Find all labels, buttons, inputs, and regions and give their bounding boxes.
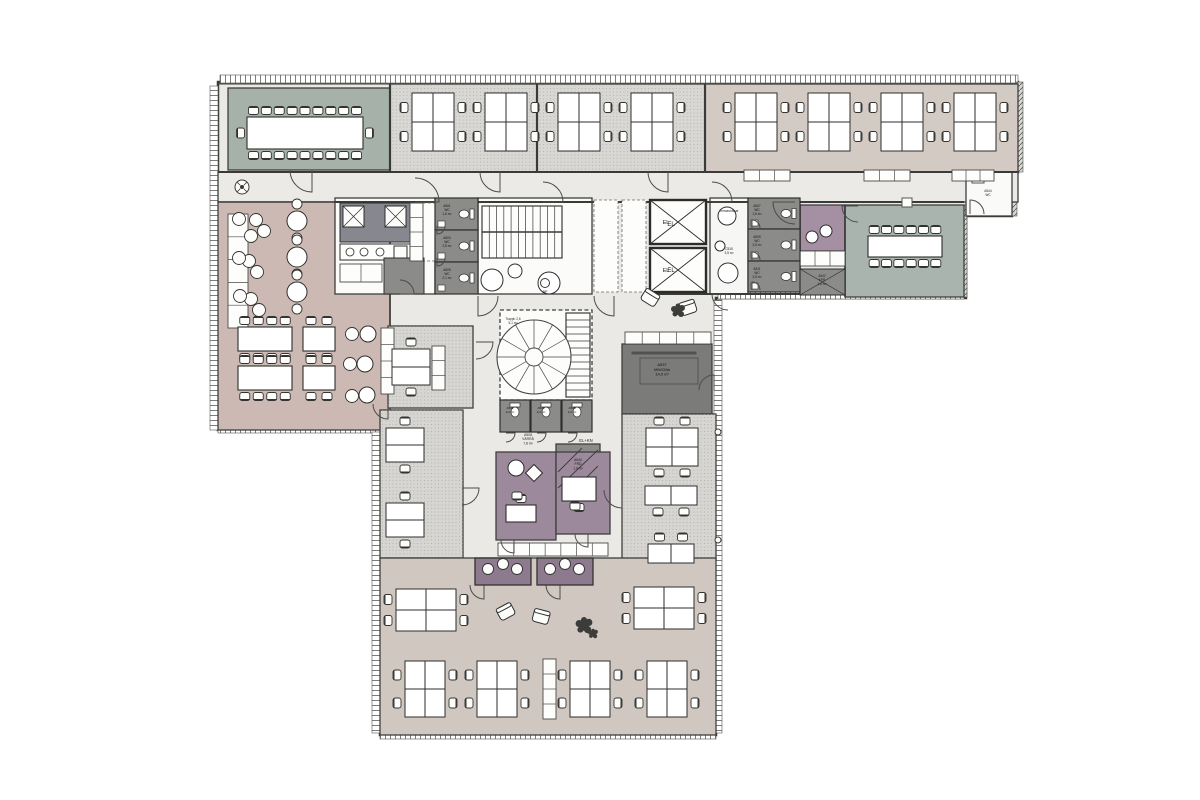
desk: [558, 122, 579, 151]
chair: [680, 417, 690, 425]
chair-round: [253, 304, 266, 317]
chair: [384, 616, 392, 626]
chair: [906, 226, 916, 234]
desk: [881, 122, 902, 151]
room-label: EL: [667, 222, 675, 228]
chair: [622, 593, 630, 603]
toilet-bowl: [781, 210, 791, 218]
room-label: A5252,2 m²: [568, 406, 577, 414]
desk: [808, 122, 829, 151]
chair: [558, 670, 566, 680]
chair-round: [344, 358, 357, 371]
fixture-rect: [902, 198, 912, 207]
sink: [438, 253, 445, 259]
chair: [796, 132, 804, 142]
desk: [829, 93, 850, 122]
chair: [869, 132, 877, 142]
cabinet-row: [340, 264, 382, 282]
desk: [671, 486, 697, 505]
chair: [406, 338, 416, 346]
toilet-tank: [470, 209, 474, 219]
toilet-tank: [470, 241, 474, 251]
sink: [438, 285, 445, 291]
chair: [406, 388, 416, 396]
chair: [352, 152, 362, 160]
desk: [902, 122, 923, 151]
chair: [869, 226, 879, 234]
desk: [954, 122, 975, 151]
toilet-bowl: [781, 273, 791, 281]
chair: [655, 533, 665, 541]
chair: [393, 670, 401, 680]
toilet-bowl: [459, 242, 469, 250]
chair: [622, 614, 630, 624]
chair: [619, 103, 627, 113]
desk: [652, 122, 673, 151]
chair: [322, 317, 332, 325]
chair: [635, 698, 643, 708]
cabinet-row: [864, 170, 910, 181]
chair: [781, 132, 789, 142]
room-label: A542KPR1,6 m²: [817, 274, 826, 286]
desk-cluster-quad: [622, 587, 706, 629]
desk: [506, 93, 527, 122]
floor-plan-svg: ELELELELBPEL+KNA508VÄRRÅ7,8 m²A537MH/CMa…: [0, 0, 1200, 800]
fixture-rect: [343, 206, 364, 227]
desk: [829, 122, 850, 151]
chair: [927, 132, 935, 142]
chair: [449, 698, 457, 708]
stool: [483, 564, 494, 575]
chair: [619, 132, 627, 142]
desk: [756, 93, 777, 122]
chair-round: [346, 328, 359, 341]
toilet-tank: [792, 209, 796, 219]
desk: [570, 661, 590, 689]
room-label: A5232,2 m²: [537, 406, 546, 414]
chair: [400, 417, 410, 425]
desk: [954, 93, 975, 122]
chair: [906, 260, 916, 268]
desk: [756, 122, 777, 151]
spiral-staircase: [497, 320, 571, 394]
desk: [485, 122, 506, 151]
desk: [645, 486, 671, 505]
chair: [654, 469, 664, 477]
chair: [680, 469, 690, 477]
round-table: [481, 269, 503, 291]
chair: [521, 670, 529, 680]
elevator: EL: [650, 200, 706, 244]
chair-round: [245, 230, 258, 243]
table-top: [562, 477, 596, 501]
desk: [646, 447, 672, 466]
desk-cluster-quad: [384, 589, 468, 631]
round-table: [359, 387, 375, 403]
cabinet-row: [800, 251, 845, 266]
desk: [808, 93, 829, 122]
chair: [653, 508, 663, 516]
chair: [267, 356, 277, 364]
chair: [531, 132, 539, 142]
desk: [647, 661, 667, 689]
chair: [400, 132, 408, 142]
desk: [579, 93, 600, 122]
desk: [646, 428, 672, 447]
chair: [781, 103, 789, 113]
toilet-tank: [792, 272, 796, 282]
round-table: [508, 264, 522, 278]
chair: [267, 393, 277, 401]
chair-round: [250, 214, 263, 227]
desk: [497, 661, 517, 689]
chair: [894, 260, 904, 268]
stool: [560, 559, 571, 570]
wall-symbol: [541, 279, 550, 288]
chair-round: [251, 266, 264, 279]
room-label: Terrasshissar: [720, 209, 740, 213]
desk: [648, 544, 671, 563]
chair: [280, 393, 290, 401]
desk: [396, 589, 426, 610]
chair: [1000, 103, 1008, 113]
desk: [671, 544, 694, 563]
chair: [691, 670, 699, 680]
wc-room: [435, 230, 478, 262]
wc-room: [531, 400, 561, 432]
desk: [975, 122, 996, 151]
desk: [647, 689, 667, 717]
desk: [634, 587, 664, 608]
wc-room: [435, 198, 478, 230]
room-label: EL+KN: [579, 438, 592, 443]
table-top: [238, 366, 292, 390]
round-table: [820, 225, 832, 237]
chair: [546, 103, 554, 113]
chair: [352, 107, 362, 115]
table-top: [868, 236, 942, 257]
chair: [384, 595, 392, 605]
wall-symbol: [715, 537, 721, 543]
chair: [237, 128, 245, 138]
storage-dashed: [594, 200, 618, 292]
chair: [339, 152, 349, 160]
chair: [854, 132, 862, 142]
chair: [919, 260, 929, 268]
desk: [477, 689, 497, 717]
chair: [931, 260, 941, 268]
toilet-tank: [470, 273, 474, 283]
table-top: [238, 327, 292, 351]
chair: [604, 103, 612, 113]
desk: [497, 689, 517, 717]
desk: [386, 520, 424, 537]
stool: [498, 559, 509, 570]
desk: [579, 122, 600, 151]
chair: [473, 132, 481, 142]
desk: [506, 122, 527, 151]
desk: [664, 587, 694, 608]
chair-standalone: [570, 502, 580, 510]
chair: [698, 614, 706, 624]
table-top: [247, 117, 363, 149]
cabinet-row: [744, 170, 790, 181]
cabinet-row: [952, 170, 994, 181]
chair: [306, 393, 316, 401]
chair: [240, 317, 250, 325]
chair: [942, 103, 950, 113]
desk: [902, 93, 923, 122]
chair: [882, 260, 892, 268]
desk: [426, 610, 456, 631]
chair-round: [233, 213, 246, 226]
desk: [392, 367, 430, 385]
fixture-rect: [632, 352, 696, 354]
floor-plan-page: ELELELELBPEL+KNA508VÄRRÅ7,8 m²A537MH/CMa…: [0, 0, 1200, 800]
round-table: [715, 241, 725, 251]
fixture-rect: [385, 206, 406, 227]
chair: [635, 670, 643, 680]
chair: [854, 103, 862, 113]
stool: [574, 564, 585, 575]
room-label: BP: [543, 290, 548, 294]
desk: [590, 661, 610, 689]
chair: [339, 107, 349, 115]
desk: [664, 608, 694, 629]
wc-room: [435, 262, 478, 294]
desk: [425, 689, 445, 717]
desk: [386, 428, 424, 445]
chair: [882, 226, 892, 234]
chair: [261, 152, 271, 160]
chair: [465, 698, 473, 708]
chair: [306, 317, 316, 325]
chair: [919, 226, 929, 234]
chair: [614, 670, 622, 680]
chair: [261, 107, 271, 115]
chair: [570, 502, 580, 510]
chair-round: [234, 290, 247, 303]
chair: [313, 152, 323, 160]
phone-booth: [537, 558, 593, 585]
toilet-bowl: [459, 210, 469, 218]
desk: [426, 589, 456, 610]
chair-standalone: [512, 492, 522, 500]
chair: [869, 103, 877, 113]
desk: [433, 93, 454, 122]
desk: [396, 610, 426, 631]
chair: [240, 393, 250, 401]
facade-band: [210, 86, 218, 430]
phone-booth: [475, 558, 531, 585]
chair: [460, 616, 468, 626]
chair: [1000, 132, 1008, 142]
wall-symbol: [715, 429, 721, 435]
fixture-rect: [394, 246, 407, 258]
desk: [590, 689, 610, 717]
chair: [393, 698, 401, 708]
chair: [927, 103, 935, 113]
chair: [253, 317, 263, 325]
storage-dashed: [622, 200, 646, 292]
desk: [477, 661, 497, 689]
chair: [458, 132, 466, 142]
chair: [366, 128, 374, 138]
chair: [240, 356, 250, 364]
desk: [405, 689, 425, 717]
desk: [412, 122, 433, 151]
facade-band: [220, 75, 1018, 83]
chair: [678, 533, 688, 541]
stool: [545, 564, 556, 575]
chair: [942, 132, 950, 142]
chair: [691, 698, 699, 708]
chair: [894, 226, 904, 234]
cabinet-row: [228, 214, 248, 328]
chair: [677, 132, 685, 142]
chair: [267, 317, 277, 325]
chair: [465, 670, 473, 680]
staircase: [482, 206, 562, 258]
desk: [631, 93, 652, 122]
chair: [400, 465, 410, 473]
room-label: EL: [667, 268, 675, 274]
chair: [400, 540, 410, 548]
chair: [473, 103, 481, 113]
chair: [253, 356, 263, 364]
chair-round: [292, 235, 302, 245]
wc-room: [562, 400, 592, 432]
chair: [300, 152, 310, 160]
chair: [300, 107, 310, 115]
desk: [558, 93, 579, 122]
chair-round: [292, 304, 302, 314]
chair: [521, 698, 529, 708]
round-table: [806, 231, 818, 243]
wc-room: [500, 400, 530, 432]
chair-round: [258, 225, 271, 238]
desk: [405, 661, 425, 689]
chair: [287, 107, 297, 115]
chair-round: [292, 199, 302, 209]
desk: [735, 93, 756, 122]
desk: [667, 661, 687, 689]
desk: [975, 93, 996, 122]
table-with-chairs: [237, 107, 374, 160]
round-table: [360, 326, 376, 342]
desk: [634, 608, 664, 629]
table-top: [303, 327, 335, 351]
chair: [280, 356, 290, 364]
chair: [274, 107, 284, 115]
chair: [698, 593, 706, 603]
chair: [322, 393, 332, 401]
chair: [654, 417, 664, 425]
chair: [512, 492, 522, 500]
cabinet-row: [625, 332, 711, 344]
desk: [386, 503, 424, 520]
toilet-tank: [792, 240, 796, 250]
round-table: [508, 460, 524, 476]
sink: [438, 221, 445, 227]
chair: [614, 698, 622, 708]
desk: [631, 122, 652, 151]
cabinet-row: [543, 659, 556, 719]
chair-round: [233, 252, 246, 265]
chair: [458, 103, 466, 113]
desk: [667, 689, 687, 717]
elevator: EL: [650, 248, 706, 292]
table-top: [303, 366, 335, 390]
chair: [677, 103, 685, 113]
toilet-bowl: [781, 241, 791, 249]
toilet-bowl: [459, 274, 469, 282]
desk: [570, 689, 590, 717]
desk: [425, 661, 445, 689]
table-top: [506, 505, 536, 522]
chair: [322, 356, 332, 364]
chair: [546, 132, 554, 142]
chair: [931, 226, 941, 234]
chair: [400, 103, 408, 113]
wall-symbol: [235, 180, 249, 194]
storage-dashed: [423, 203, 435, 261]
chair: [723, 132, 731, 142]
desk: [735, 122, 756, 151]
chair: [604, 132, 612, 142]
room-label: A5212,2 m²: [506, 406, 515, 414]
chair: [869, 260, 879, 268]
desk: [392, 349, 430, 367]
chair: [280, 317, 290, 325]
desk: [672, 447, 698, 466]
chair: [248, 152, 258, 160]
cabinet-row: [410, 203, 423, 261]
desk: [672, 428, 698, 447]
round-table: [357, 356, 373, 372]
chair: [679, 508, 689, 516]
chair-round: [292, 270, 302, 280]
chair: [326, 152, 336, 160]
chair: [287, 152, 297, 160]
chair: [531, 103, 539, 113]
chair: [796, 103, 804, 113]
fixture-rect: [384, 258, 424, 294]
desk: [386, 445, 424, 462]
desk: [433, 122, 454, 151]
chair: [723, 103, 731, 113]
chair: [253, 393, 263, 401]
chair: [449, 670, 457, 680]
chair: [326, 107, 336, 115]
stool: [512, 564, 523, 575]
cabinet-row: [432, 346, 445, 390]
chair: [400, 492, 410, 500]
round-table: [718, 263, 738, 283]
chair-round: [346, 390, 359, 403]
desk: [881, 93, 902, 122]
chair: [460, 595, 468, 605]
desk: [485, 93, 506, 122]
chair: [248, 107, 258, 115]
desk: [652, 93, 673, 122]
room-label: C5153,5 m²: [724, 247, 733, 255]
desk: [412, 93, 433, 122]
chair: [306, 356, 316, 364]
facade-band: [372, 432, 380, 733]
chair: [313, 107, 323, 115]
chair: [274, 152, 284, 160]
